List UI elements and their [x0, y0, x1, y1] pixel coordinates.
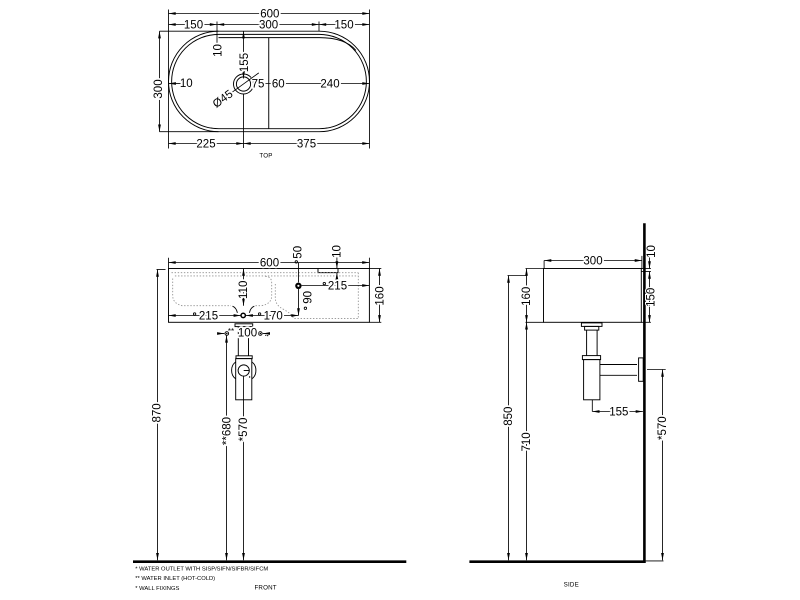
- svg-text:10: 10: [180, 78, 193, 90]
- svg-text:90: 90: [303, 291, 315, 304]
- svg-text:150: 150: [645, 288, 657, 307]
- svg-text:170: 170: [264, 310, 283, 322]
- svg-text:* WATER OUTLET WITH SISP/SIFN: * WATER OUTLET WITH SISP/SIFN/SIFBR/SIFC…: [135, 566, 268, 572]
- svg-text:FRONT: FRONT: [254, 584, 276, 591]
- svg-text:60: 60: [272, 78, 285, 90]
- svg-text:*570: *570: [238, 418, 250, 442]
- svg-text:100: 100: [238, 327, 257, 339]
- svg-text:75: 75: [252, 78, 265, 90]
- svg-text:TOP: TOP: [259, 152, 272, 159]
- svg-text:375: 375: [297, 138, 316, 150]
- svg-text:300: 300: [259, 20, 278, 32]
- svg-text:*570: *570: [657, 416, 669, 440]
- svg-text:10: 10: [332, 245, 344, 258]
- svg-text:155: 155: [609, 406, 628, 418]
- svg-text:870: 870: [151, 403, 163, 422]
- svg-text:10: 10: [212, 44, 224, 57]
- svg-text:155: 155: [239, 53, 251, 72]
- svg-text:50: 50: [292, 246, 304, 259]
- svg-text:710: 710: [521, 432, 533, 451]
- svg-text:* WALL FIXINGS: * WALL FIXINGS: [135, 586, 179, 592]
- svg-text:215: 215: [199, 310, 218, 322]
- svg-text:300: 300: [583, 255, 602, 267]
- svg-text:600: 600: [260, 257, 279, 269]
- svg-text:110: 110: [238, 281, 250, 299]
- svg-text:215: 215: [328, 280, 347, 292]
- svg-text:150: 150: [184, 20, 203, 32]
- svg-text:225: 225: [196, 138, 215, 150]
- svg-text:240: 240: [320, 78, 339, 90]
- svg-text:850: 850: [503, 407, 515, 426]
- svg-text:**: **: [228, 327, 234, 336]
- svg-text:SIDE: SIDE: [564, 582, 579, 589]
- svg-text:160: 160: [374, 286, 386, 305]
- svg-text:150: 150: [334, 20, 353, 32]
- svg-text:**680: **680: [221, 417, 233, 445]
- svg-text:** WATER INLET (HOT-COLD): ** WATER INLET (HOT-COLD): [135, 576, 215, 582]
- svg-text:160: 160: [521, 287, 533, 306]
- svg-text:300: 300: [153, 79, 165, 98]
- svg-text:10: 10: [646, 245, 658, 258]
